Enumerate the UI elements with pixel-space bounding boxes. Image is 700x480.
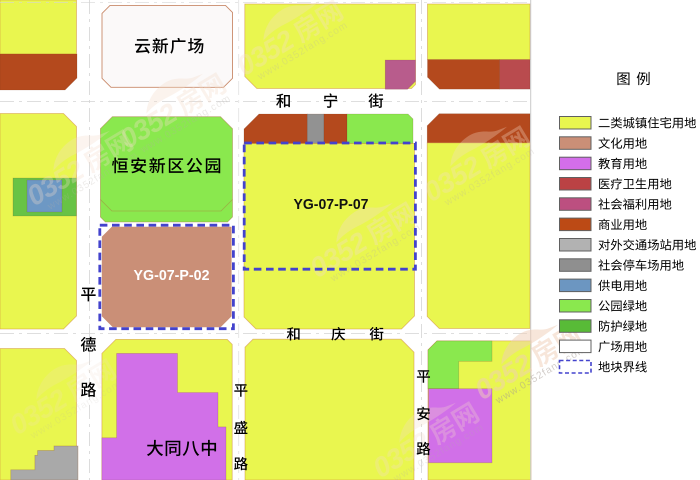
svg-text:YG-07-P-07: YG-07-P-07: [294, 196, 369, 213]
svg-text:YG-07-P-02: YG-07-P-02: [134, 267, 210, 284]
